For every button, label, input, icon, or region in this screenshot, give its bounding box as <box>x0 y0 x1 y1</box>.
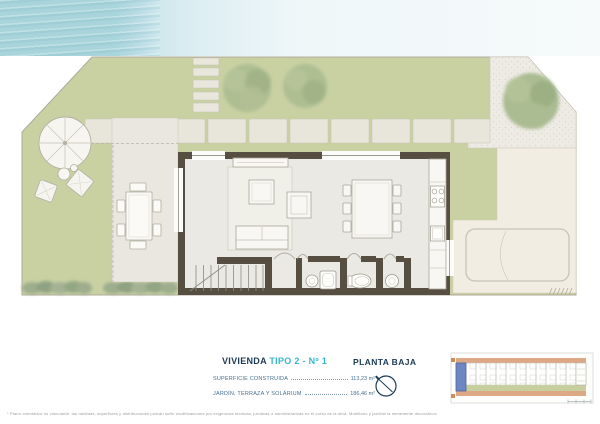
cooktop <box>431 186 445 207</box>
spec-value: 186,46 m² <box>350 391 375 397</box>
wc-basin <box>386 275 399 288</box>
utility-basin <box>306 275 318 287</box>
window-top-left <box>192 151 225 160</box>
unit-title-prefix: VIVIENDA <box>222 356 269 366</box>
tree-top-left <box>223 64 271 112</box>
sofa <box>236 226 288 249</box>
toilet <box>348 274 371 288</box>
spec-label: JARDÍN, TERRAZA Y SOLÁRIUM <box>213 391 302 397</box>
dotted-leader <box>305 394 348 395</box>
footer-band <box>0 0 600 56</box>
kitchen-counter <box>429 159 446 289</box>
spec-row-garden-surface: JARDÍN, TERRAZA Y SOLÁRIUM 186,46 m² <box>213 387 375 397</box>
spec-label: SUPERFICIE CONSTRUIDA <box>213 376 288 382</box>
disclaimer-text: * Plano orientativo no vinculante: las m… <box>7 411 437 416</box>
water-texture <box>0 0 160 56</box>
armchair <box>287 192 311 218</box>
north-compass-icon <box>373 373 399 399</box>
keyplan-highlighted-unit <box>456 363 466 391</box>
kitchen-sink <box>431 226 445 241</box>
plan-name: PLANTA BAJA <box>353 357 416 367</box>
keyplan-common-block <box>576 363 586 385</box>
console-shelf <box>233 158 288 167</box>
unit-title: VIVIENDA TIPO 2 - Nº 1 <box>222 356 327 366</box>
hedge-right <box>103 281 178 294</box>
dotted-leader <box>291 379 348 380</box>
unit-title-highlight: TIPO 2 - Nº 1 <box>269 356 327 366</box>
spec-row-built-surface: SUPERFICIE CONSTRUIDA 113,23 m² <box>213 372 375 382</box>
keyplan-units <box>456 363 586 385</box>
dining-table <box>352 180 392 238</box>
house <box>174 151 454 295</box>
window-top-right <box>322 151 400 160</box>
site-key-plan <box>448 350 596 406</box>
coffee-table <box>249 180 274 204</box>
tree-top-center <box>283 64 327 108</box>
terrace-sliding-door <box>174 168 183 232</box>
washer <box>320 271 336 289</box>
surface-specs: SUPERFICIE CONSTRUIDA 113,23 m² JARDÍN, … <box>213 372 375 402</box>
hedge-left <box>22 281 92 294</box>
spec-value: 113,23 m² <box>351 376 375 382</box>
parasol-umbrella <box>39 117 91 169</box>
tree-top-right <box>503 73 559 129</box>
